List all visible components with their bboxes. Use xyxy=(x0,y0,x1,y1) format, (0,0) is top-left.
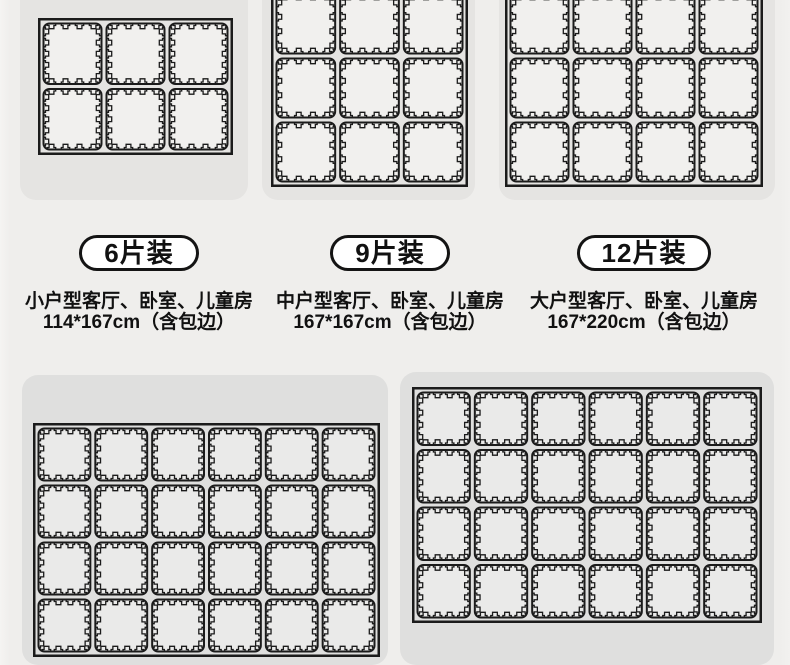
mat-diagram-12pack xyxy=(505,0,763,187)
mat-diagram-large-right xyxy=(412,387,762,623)
desc-6pack-size: 114*167cm（含包边） xyxy=(20,312,258,333)
mat-card-6pack xyxy=(20,0,248,200)
desc-9pack-rooms: 中户型客厅、卧室、儿童房 xyxy=(270,291,510,312)
mat-card-12pack xyxy=(499,0,775,200)
product-info-12pack: 12片装 大户型客厅、卧室、儿童房 167*220cm（含包边） xyxy=(524,235,764,333)
mat-diagram-large-left xyxy=(33,423,380,657)
product-info-9pack: 9片装 中户型客厅、卧室、儿童房 167*167cm（含包边） xyxy=(270,235,510,333)
product-info-6pack: 6片装 小户型客厅、卧室、儿童房 114*167cm（含包边） xyxy=(20,235,258,333)
desc-9pack-size: 167*167cm（含包边） xyxy=(270,312,510,333)
desc-6pack: 小户型客厅、卧室、儿童房 114*167cm（含包边） xyxy=(20,291,258,333)
badge-6pack: 6片装 xyxy=(79,235,198,271)
mat-card-large-left xyxy=(22,375,388,665)
desc-9pack: 中户型客厅、卧室、儿童房 167*167cm（含包边） xyxy=(270,291,510,333)
badge-12pack: 12片装 xyxy=(577,235,712,271)
desc-12pack-rooms: 大户型客厅、卧室、儿童房 xyxy=(524,291,764,312)
mat-diagram-9pack xyxy=(271,0,468,187)
mat-card-9pack xyxy=(262,0,475,200)
mat-card-large-right xyxy=(400,372,774,665)
desc-12pack: 大户型客厅、卧室、儿童房 167*220cm（含包边） xyxy=(524,291,764,333)
desc-6pack-rooms: 小户型客厅、卧室、儿童房 xyxy=(20,291,258,312)
mat-diagram-6pack xyxy=(38,18,233,155)
desc-12pack-size: 167*220cm（含包边） xyxy=(524,312,764,333)
badge-9pack: 9片装 xyxy=(330,235,449,271)
product-size-infographic: { "colors": { "page_bg": "#efeeec", "car… xyxy=(0,0,790,593)
